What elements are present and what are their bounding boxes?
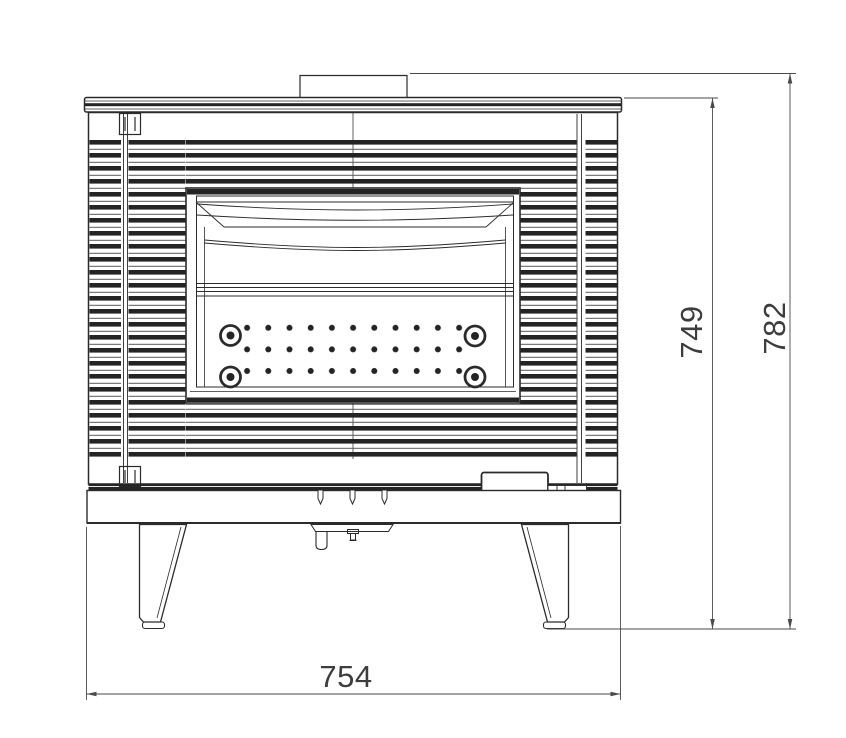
arrow-down-icon (788, 619, 793, 629)
right-leg (522, 525, 569, 629)
air-control-lever (316, 532, 327, 550)
dimension-754: 754 (87, 659, 621, 696)
arrow-up-icon (788, 74, 793, 84)
arrow-up-icon (710, 98, 715, 108)
top-plate (85, 98, 622, 113)
dimension-782: 782 (757, 74, 792, 630)
dimension-label-749: 749 (674, 305, 709, 358)
ribs-left-side-panel (90, 140, 122, 458)
door-window (186, 188, 520, 403)
control-plate (311, 525, 393, 532)
left-leg (140, 525, 187, 629)
ribs-right-side-panel (586, 140, 618, 458)
stove-front-elevation-drawing: 749 782 754 (0, 0, 846, 738)
flue-collar (300, 76, 407, 98)
window-bottom-band (187, 398, 519, 403)
left-leg-foot (143, 622, 165, 629)
window-top-band (187, 189, 519, 195)
ribs-door-bottom (186, 404, 520, 458)
dimension-label-754: 754 (319, 659, 372, 694)
hinge-top (120, 114, 141, 135)
door-gap-right (577, 114, 582, 483)
stove-body-group (85, 76, 622, 629)
ribs-door-right (520, 140, 577, 458)
perforation-dots (237, 318, 469, 378)
right-leg-foot (544, 622, 566, 629)
door-gap-left (124, 114, 128, 483)
dimension-749: 749 (674, 98, 715, 629)
underbase-controls (311, 525, 393, 550)
arrow-right-icon (611, 692, 621, 697)
arrow-left-icon (87, 692, 97, 697)
dimension-label-782: 782 (757, 301, 792, 354)
drawing-canvas: 749 782 754 (0, 0, 846, 738)
ribs-door-top (186, 140, 520, 186)
arrow-down-icon (710, 619, 715, 629)
ribs-door-left (129, 140, 186, 458)
